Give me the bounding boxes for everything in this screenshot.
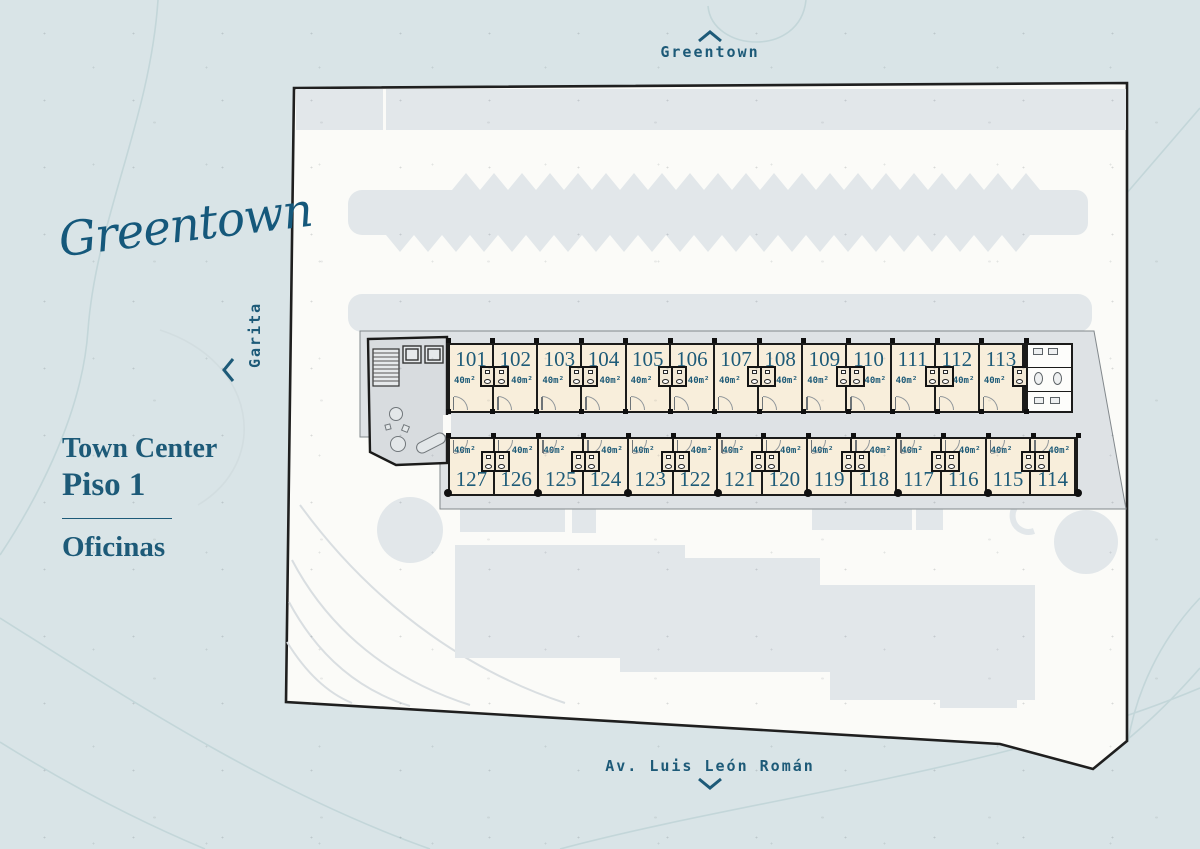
column-dot (1076, 433, 1081, 438)
unit-area-label: 40m² (807, 376, 829, 386)
column-dot (757, 338, 762, 343)
unit-area-label: 40m² (864, 376, 886, 386)
lounge-table-icon (390, 436, 406, 452)
unit-number: 118 (852, 469, 895, 490)
shared-bathroom-icon (569, 366, 598, 387)
door-arc-icon (498, 396, 512, 410)
shared-bathroom-icon (658, 366, 687, 387)
unit-number: 114 (1031, 469, 1074, 490)
column-dot (446, 409, 451, 414)
column-dot (444, 489, 452, 497)
shared-bathroom-icon (836, 366, 865, 387)
column-dot (979, 338, 984, 343)
unit-number: 124 (584, 469, 627, 490)
shared-bathroom-icon (571, 451, 600, 472)
column-dot (579, 338, 584, 343)
column-dot (935, 409, 940, 414)
column-dot (534, 338, 539, 343)
column-dot (668, 338, 673, 343)
unit-area-label: 40m² (953, 376, 975, 386)
unit-area-label: 40m² (984, 376, 1006, 386)
unit-area-label: 40m² (512, 446, 534, 456)
shared-bathroom-icon (841, 451, 870, 472)
column-dot (896, 433, 901, 438)
door-arc-icon (763, 396, 777, 410)
column-dot (624, 489, 632, 497)
unit-area-label: 40m² (601, 446, 623, 456)
unit-area-label: 40m² (776, 376, 798, 386)
shared-bathroom-icon (925, 366, 954, 387)
column-dot (986, 433, 991, 438)
column-dot (804, 489, 812, 497)
column-dot (446, 338, 451, 343)
column-dot (801, 409, 806, 414)
restrooms-block (1026, 343, 1073, 413)
door-arc-icon (719, 396, 733, 410)
top-row-units: 10140m²10240m²10340m²10440m²10540m²10640… (448, 343, 1026, 413)
column-dot (1024, 409, 1029, 414)
lobby-block (0, 0, 1200, 849)
column-dot (894, 489, 902, 497)
door-arc-icon (631, 396, 645, 410)
bottom-row-units: 12740m²12640m²12540m²12440m²12340m²12240… (448, 437, 1078, 496)
unit-number: 119 (808, 469, 851, 490)
column-dot (806, 433, 811, 438)
toilet-icon (1053, 372, 1062, 385)
column-dot (935, 338, 940, 343)
column-dot (757, 409, 762, 414)
toilet-icon (1034, 372, 1043, 385)
unit-area-label: 40m² (869, 446, 891, 456)
unit-area-label: 40m² (599, 376, 621, 386)
column-dot (490, 409, 495, 414)
unit-area-label: 40m² (780, 446, 802, 456)
unit-number: 120 (763, 469, 806, 490)
door-arc-icon (454, 396, 468, 410)
column-dot (714, 489, 722, 497)
unit-number: 121 (718, 469, 761, 490)
column-dot (851, 433, 856, 438)
shared-bathroom-icon (1021, 451, 1050, 472)
unit-area-label: 40m² (1048, 446, 1070, 456)
column-dot (1024, 338, 1029, 343)
unit-area-label: 40m² (959, 446, 981, 456)
unit-area-label: 40m² (542, 376, 564, 386)
shared-bathroom-icon (751, 451, 780, 472)
column-dot (712, 338, 717, 343)
column-dot (536, 433, 541, 438)
column-dot (626, 433, 631, 438)
floorplan-page: 10140m²10240m²10340m²10440m²10540m²10640… (0, 0, 1200, 849)
shared-bathroom-icon (661, 451, 690, 472)
shared-bathroom-icon (481, 451, 510, 472)
sink-icon (1034, 397, 1044, 404)
lounge-table-icon (389, 407, 403, 421)
column-dot (1074, 489, 1082, 497)
column-dot (801, 338, 806, 343)
unit-area-label: 40m² (631, 376, 653, 386)
door-arc-icon (675, 396, 689, 410)
unit-number: 117 (897, 469, 940, 490)
column-dot (890, 409, 895, 414)
unit-area-label: 40m² (896, 376, 918, 386)
sink-icon (1033, 348, 1043, 355)
unit-number: 126 (495, 469, 538, 490)
unit-area-label: 40m² (691, 446, 713, 456)
column-dot (846, 409, 851, 414)
door-arc-icon (940, 396, 954, 410)
column-dot (446, 433, 451, 438)
shared-bathroom-icon (480, 366, 509, 387)
column-dot (668, 409, 673, 414)
column-dot (623, 338, 628, 343)
column-dot (712, 409, 717, 414)
column-dot (984, 489, 992, 497)
unit-number: 125 (539, 469, 582, 490)
unit-number: 123 (629, 469, 672, 490)
unit-area-label: 40m² (688, 376, 710, 386)
door-arc-icon (586, 396, 600, 410)
column-dot (716, 433, 721, 438)
unit-area-label: 40m² (454, 376, 476, 386)
door-arc-icon (984, 396, 998, 410)
column-dot (890, 338, 895, 343)
column-dot (761, 433, 766, 438)
unit-area-label: 40m² (719, 376, 741, 386)
column-dot (623, 409, 628, 414)
column-dot (581, 433, 586, 438)
shared-bathroom-icon (931, 451, 960, 472)
unit-number: 127 (450, 469, 493, 490)
shared-bathroom-icon (747, 366, 776, 387)
column-dot (846, 338, 851, 343)
stairs-icon (373, 349, 399, 386)
column-dot (491, 433, 496, 438)
unit-number: 122 (674, 469, 717, 490)
unit-number: 116 (942, 469, 985, 490)
unit-number: 115 (987, 469, 1030, 490)
sink-icon (1048, 348, 1058, 355)
column-dot (490, 338, 495, 343)
door-arc-icon (896, 396, 910, 410)
column-dot (534, 489, 542, 497)
unit-area-label: 40m² (511, 376, 533, 386)
column-dot (979, 409, 984, 414)
door-arc-icon (851, 396, 865, 410)
column-dot (941, 433, 946, 438)
column-dot (1031, 433, 1036, 438)
column-dot (534, 409, 539, 414)
door-arc-icon (807, 396, 821, 410)
column-dot (579, 409, 584, 414)
column-dot (671, 433, 676, 438)
sink-icon (1050, 397, 1060, 404)
door-arc-icon (542, 396, 556, 410)
